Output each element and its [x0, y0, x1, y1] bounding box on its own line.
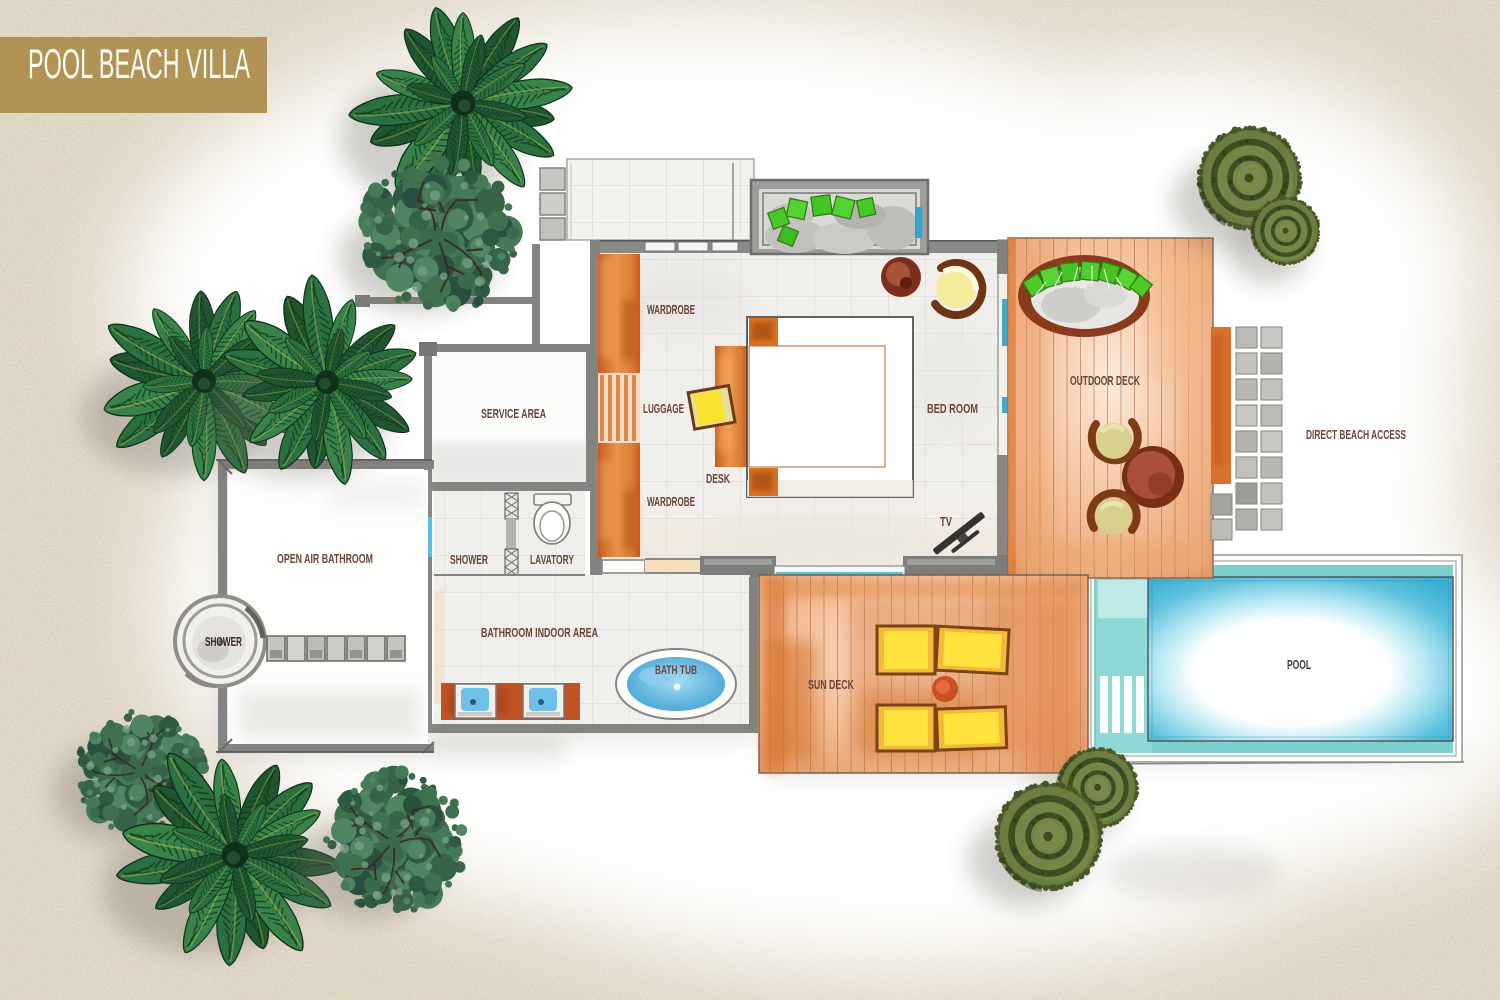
svg-text:WARDROBE: WARDROBE: [647, 494, 695, 509]
svg-text:TV: TV: [940, 514, 952, 529]
svg-text:BED ROOM: BED ROOM: [927, 401, 978, 416]
svg-text:BATHROOM INDOOR AREA: BATHROOM INDOOR AREA: [481, 625, 598, 640]
svg-text:OPEN AIR BATHROOM: OPEN AIR BATHROOM: [277, 551, 373, 566]
svg-text:POOL: POOL: [1287, 657, 1311, 672]
svg-text:SERVICE AREA: SERVICE AREA: [481, 406, 546, 421]
svg-text:LAVATORY: LAVATORY: [530, 552, 574, 567]
svg-text:BATH TUB: BATH TUB: [655, 663, 697, 677]
svg-text:SHOWER: SHOWER: [450, 552, 488, 567]
svg-text:WARDROBE: WARDROBE: [647, 302, 695, 317]
svg-text:DESK: DESK: [706, 471, 730, 486]
svg-text:OUTDOOR DECK: OUTDOOR DECK: [1070, 373, 1140, 388]
svg-text:DIRECT BEACH ACCESS: DIRECT BEACH ACCESS: [1306, 427, 1406, 442]
svg-text:SHOWER: SHOWER: [205, 635, 242, 649]
svg-text:LUGGAGE: LUGGAGE: [643, 401, 684, 416]
svg-text:SUN DECK: SUN DECK: [808, 677, 854, 692]
svg-text:POOL BEACH VILLA: POOL BEACH VILLA: [28, 40, 250, 87]
